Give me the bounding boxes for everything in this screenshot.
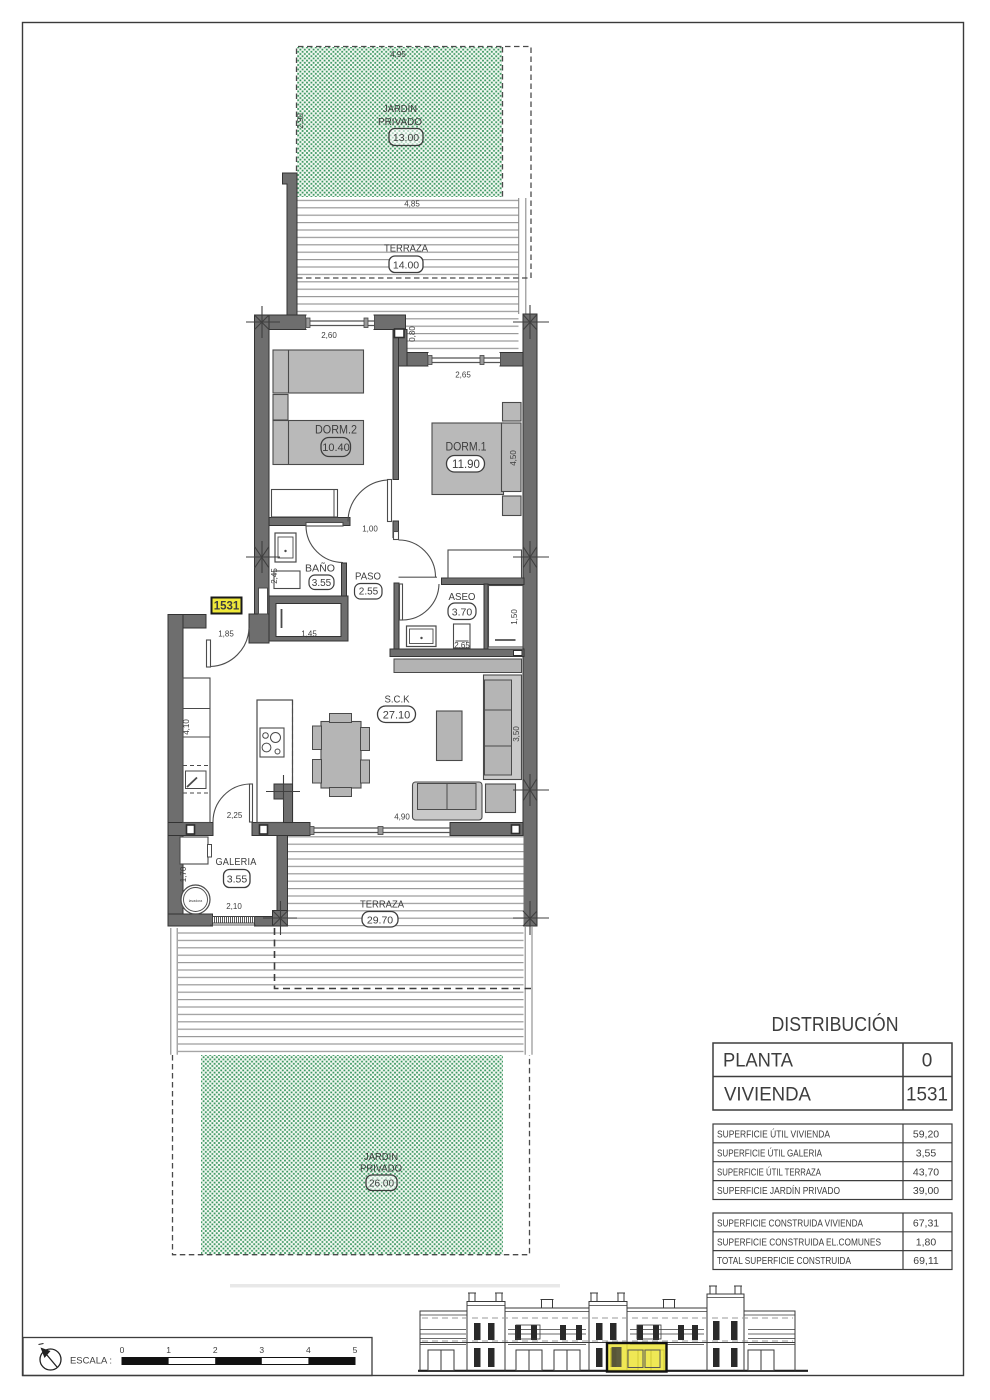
- svg-text:1531: 1531: [214, 601, 240, 613]
- svg-text:4,95: 4,95: [390, 50, 406, 59]
- svg-text:1,50: 1,50: [510, 609, 519, 625]
- svg-text:2,45: 2,45: [270, 568, 279, 584]
- svg-text:PLANTA: PLANTA: [723, 1051, 793, 1072]
- svg-text:TERRAZA: TERRAZA: [384, 243, 428, 255]
- svg-text:3,50: 3,50: [512, 726, 521, 742]
- svg-text:4,50: 4,50: [509, 450, 518, 466]
- svg-text:69,11: 69,11: [913, 1255, 939, 1267]
- svg-text:PRIVADO: PRIVADO: [360, 1164, 402, 1175]
- svg-text:14.00: 14.00: [393, 260, 419, 272]
- svg-text:GALERIA: GALERIA: [216, 857, 257, 868]
- svg-text:SUPERFICIE CONSTRUIDA EL.COMUN: SUPERFICIE CONSTRUIDA EL.COMUNES: [717, 1236, 881, 1248]
- svg-text:lavadora: lavadora: [189, 899, 202, 903]
- svg-text:4,10: 4,10: [182, 719, 191, 735]
- svg-text:2,25: 2,25: [227, 811, 243, 820]
- svg-text:1531: 1531: [906, 1085, 948, 1106]
- svg-text:PASO: PASO: [355, 572, 381, 583]
- svg-text:SUPERFICIE CONSTRUIDA VIVIENDA: SUPERFICIE CONSTRUIDA VIVIENDA: [717, 1218, 863, 1230]
- svg-text:1,00: 1,00: [362, 525, 378, 534]
- svg-text:5: 5: [353, 1345, 358, 1355]
- svg-text:0: 0: [120, 1345, 125, 1355]
- svg-text:4,85: 4,85: [404, 200, 420, 209]
- svg-text:PRIVADO: PRIVADO: [378, 116, 422, 128]
- svg-text:2: 2: [213, 1345, 218, 1355]
- svg-text:1,45: 1,45: [301, 630, 317, 639]
- svg-text:39,00: 39,00: [913, 1185, 939, 1197]
- svg-text:27.10: 27.10: [383, 710, 411, 722]
- svg-text:ESCALA :: ESCALA :: [70, 1356, 112, 1367]
- svg-text:2,90: 2,90: [296, 113, 305, 129]
- svg-text:0,80: 0,80: [408, 326, 417, 342]
- svg-text:3.55: 3.55: [227, 874, 248, 886]
- svg-text:2.55: 2.55: [359, 587, 379, 598]
- svg-text:29.70: 29.70: [367, 915, 393, 927]
- svg-text:1,70: 1,70: [179, 866, 188, 882]
- svg-text:1,80: 1,80: [916, 1236, 937, 1248]
- svg-text:10.40: 10.40: [322, 442, 350, 454]
- svg-text:1,85: 1,85: [218, 630, 234, 639]
- svg-text:TOTAL SUPERFICIE CONSTRUIDA: TOTAL SUPERFICIE CONSTRUIDA: [717, 1255, 851, 1267]
- svg-text:3.55: 3.55: [312, 578, 332, 589]
- svg-text:SUPERFICIE ÚTIL VIVIENDA: SUPERFICIE ÚTIL VIVIENDA: [717, 1128, 830, 1141]
- svg-text:43,70: 43,70: [913, 1166, 939, 1178]
- svg-text:11.90: 11.90: [452, 459, 480, 471]
- svg-text:VIVIENDA: VIVIENDA: [724, 1085, 811, 1106]
- svg-text:2,65: 2,65: [455, 371, 471, 380]
- svg-text:JARDIN: JARDIN: [364, 1152, 398, 1163]
- svg-text:SUPERFICIE ÚTIL TERRAZA: SUPERFICIE ÚTIL TERRAZA: [717, 1165, 821, 1178]
- svg-text:SUPERFICIE ÚTIL GALERIA: SUPERFICIE ÚTIL GALERIA: [717, 1147, 822, 1160]
- svg-text:2,60: 2,60: [321, 331, 337, 340]
- svg-text:26.00: 26.00: [369, 1179, 394, 1190]
- svg-text:4: 4: [306, 1345, 311, 1355]
- svg-text:S.C.K: S.C.K: [385, 695, 410, 706]
- svg-text:2,10: 2,10: [226, 902, 242, 911]
- svg-text:3.70: 3.70: [452, 607, 473, 619]
- svg-text:DORM.1: DORM.1: [446, 442, 487, 454]
- svg-text:0: 0: [922, 1051, 933, 1072]
- svg-text:SUPERFICIE JARDÍN PRIVADO: SUPERFICIE JARDÍN PRIVADO: [717, 1184, 840, 1197]
- svg-text:3,55: 3,55: [916, 1148, 937, 1160]
- svg-text:2,65: 2,65: [454, 641, 470, 650]
- svg-text:TERRAZA: TERRAZA: [360, 899, 404, 911]
- svg-text:1: 1: [166, 1345, 171, 1355]
- svg-text:13.00: 13.00: [393, 132, 419, 144]
- svg-text:JARDÍN: JARDÍN: [383, 102, 417, 115]
- svg-text:3: 3: [259, 1345, 264, 1355]
- svg-text:DISTRIBUCIÓN: DISTRIBUCIÓN: [772, 1013, 899, 1036]
- svg-text:BAÑO: BAÑO: [305, 562, 335, 575]
- svg-text:DORM.2: DORM.2: [315, 425, 357, 437]
- svg-text:ASEO: ASEO: [449, 592, 476, 603]
- svg-text:67,31: 67,31: [913, 1218, 939, 1230]
- svg-text:59,20: 59,20: [913, 1129, 939, 1141]
- svg-text:4,90: 4,90: [394, 813, 410, 822]
